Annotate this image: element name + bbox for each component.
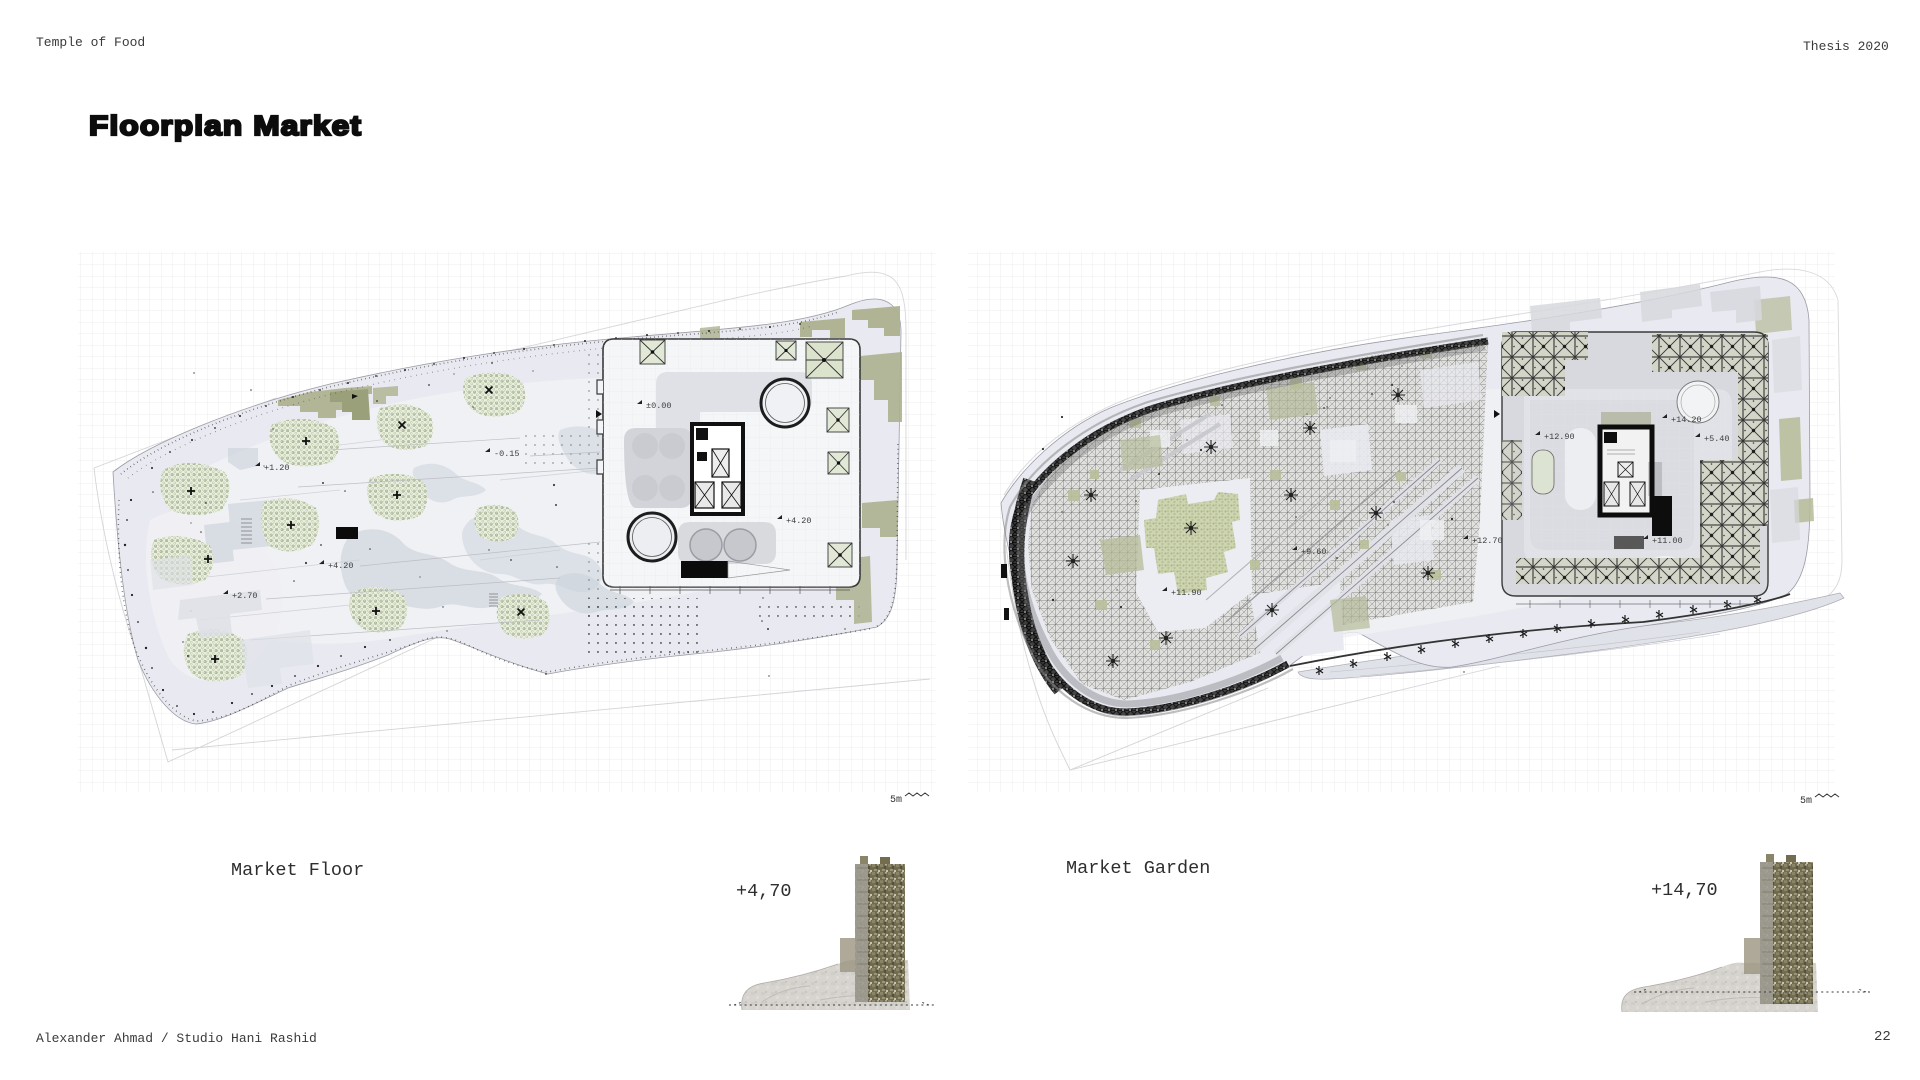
svg-text:+14.20: +14.20 xyxy=(1671,415,1702,425)
svg-text:+9.60: +9.60 xyxy=(1301,547,1327,557)
svg-text:+11.00: +11.00 xyxy=(1652,536,1683,546)
svg-text:+12.70: +12.70 xyxy=(1472,536,1503,546)
svg-text:5m: 5m xyxy=(1800,796,1812,807)
svg-text:+4.20: +4.20 xyxy=(328,561,354,571)
svg-text:+1.20: +1.20 xyxy=(264,463,290,473)
svg-text:+12.90: +12.90 xyxy=(1544,432,1575,442)
svg-text:+11.90: +11.90 xyxy=(1171,588,1202,598)
svg-text:±0.00: ±0.00 xyxy=(646,401,672,411)
svg-text:+2.70: +2.70 xyxy=(232,591,258,601)
svg-text:-0.15: -0.15 xyxy=(494,449,520,459)
svg-text:5m: 5m xyxy=(890,795,902,806)
svg-text:+5.40: +5.40 xyxy=(1704,434,1730,444)
svg-text:+4.20: +4.20 xyxy=(786,516,812,526)
